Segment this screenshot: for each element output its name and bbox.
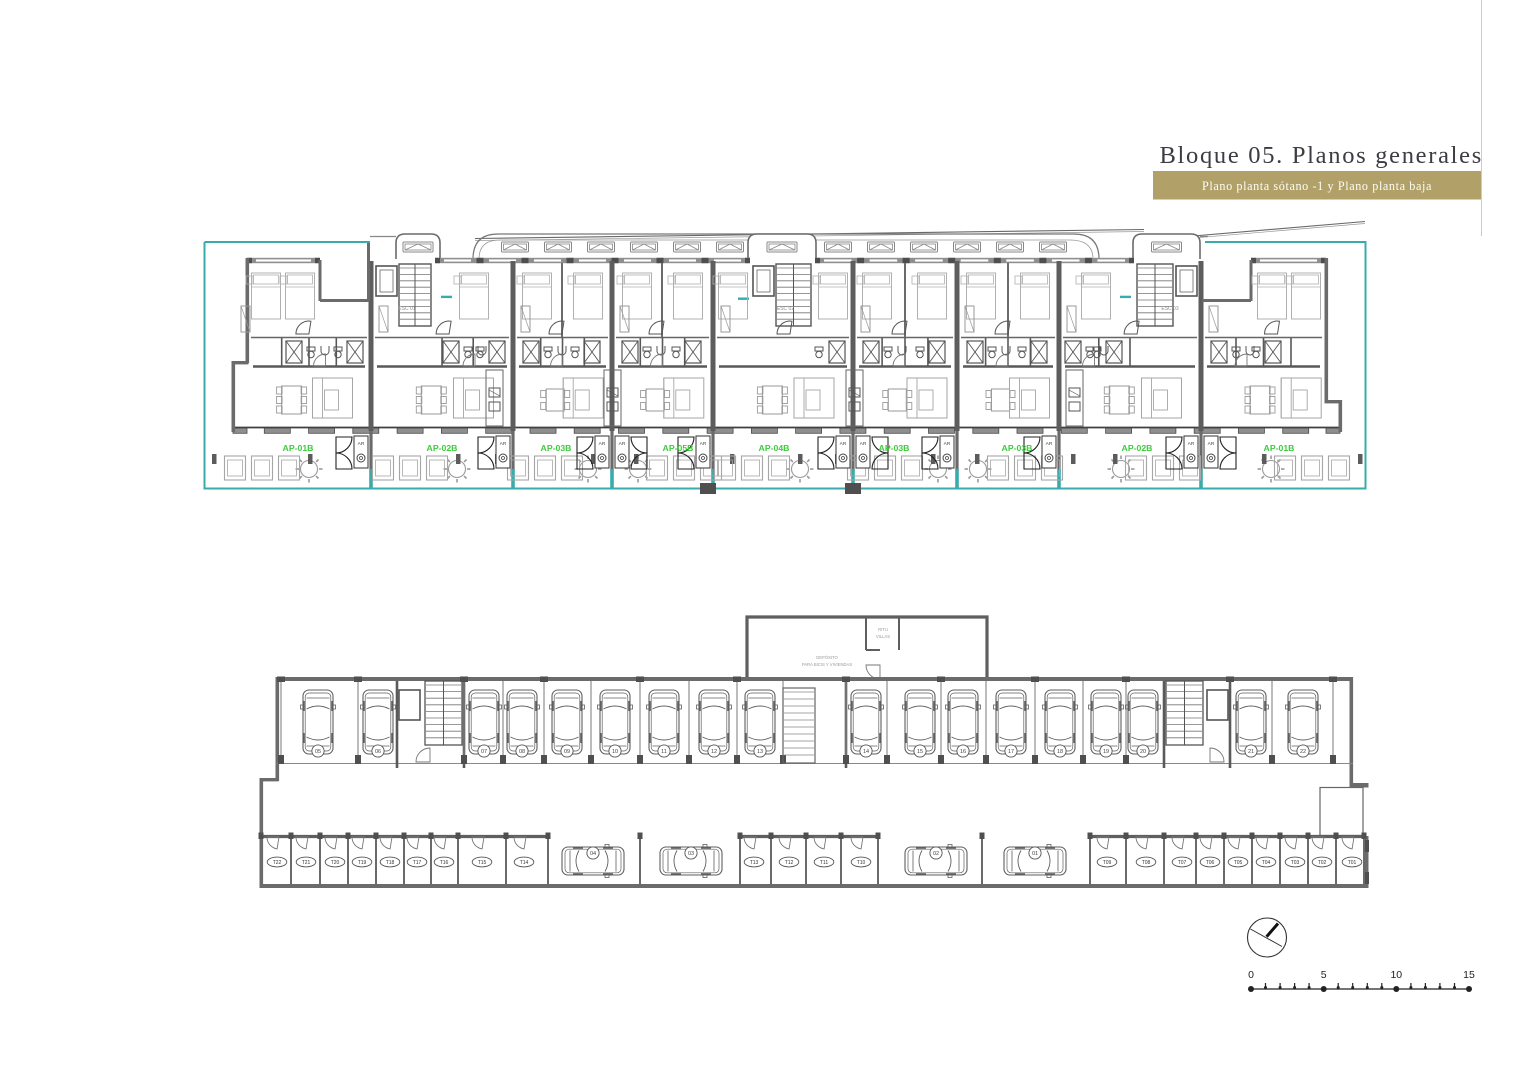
svg-text:AP-01B: AP-01B [283,443,314,453]
svg-text:AP-01B: AP-01B [1264,443,1295,453]
svg-text:AP-02B: AP-02B [427,443,458,453]
svg-text:17: 17 [1008,749,1014,755]
svg-text:T06: T06 [1206,860,1215,866]
svg-text:AR: AR [840,441,847,447]
svg-text:AR: AR [860,441,867,447]
svg-text:15: 15 [1463,969,1475,981]
svg-text:T01: T01 [1348,860,1357,866]
svg-text:06: 06 [375,749,381,755]
svg-text:AP-03B: AP-03B [879,443,910,453]
svg-text:20: 20 [1140,749,1146,755]
svg-text:ESC 03: ESC 03 [1161,306,1178,312]
svg-text:AP-03B: AP-03B [1002,443,1033,453]
svg-text:T22: T22 [273,860,282,866]
svg-text:AR: AR [700,441,707,447]
svg-text:5: 5 [1321,969,1327,981]
svg-text:08: 08 [519,749,525,755]
svg-text:T04: T04 [1262,860,1271,866]
svg-text:T12: T12 [785,860,794,866]
svg-text:T18: T18 [386,860,395,866]
svg-text:T16: T16 [440,860,449,866]
svg-text:ESC 01: ESC 01 [398,306,415,312]
svg-text:02: 02 [933,851,939,857]
svg-text:05: 05 [315,749,321,755]
svg-text:AR: AR [1046,441,1053,447]
svg-text:T20: T20 [331,860,340,866]
svg-text:T15: T15 [478,860,487,866]
svg-text:ESC 02: ESC 02 [777,306,794,312]
svg-text:VILLAS: VILLAS [876,634,890,639]
svg-text:07: 07 [481,749,487,755]
svg-text:03: 03 [688,851,694,857]
svg-text:01: 01 [1032,851,1038,857]
svg-text:T07: T07 [1178,860,1187,866]
svg-text:T11: T11 [820,860,828,866]
svg-text:11: 11 [661,749,667,755]
svg-text:T17: T17 [413,860,422,866]
svg-text:19: 19 [1103,749,1109,755]
svg-text:T09: T09 [1103,860,1112,866]
svg-text:T08: T08 [1142,860,1151,866]
svg-text:21: 21 [1248,749,1254,755]
svg-text:13: 13 [757,749,763,755]
svg-text:AP-04B: AP-04B [759,443,790,453]
svg-text:AR: AR [944,441,951,447]
svg-text:T13: T13 [750,860,759,866]
svg-text:09: 09 [564,749,570,755]
svg-text:T19: T19 [358,860,367,866]
svg-text:AR: AR [1208,441,1215,447]
svg-text:AR: AR [500,441,507,447]
svg-text:T03: T03 [1291,860,1300,866]
svg-text:14: 14 [863,749,869,755]
svg-text:T21: T21 [302,860,311,866]
svg-text:AR: AR [599,441,606,447]
svg-text:AR: AR [358,441,365,447]
svg-text:Plano planta sótano -1 y Plano: Plano planta sótano -1 y Plano planta ba… [1202,179,1432,193]
svg-text:PARA BICIS Y VIVIENDAS: PARA BICIS Y VIVIENDAS [802,662,852,667]
svg-text:DEPÓSITO: DEPÓSITO [816,655,838,660]
svg-text:T05: T05 [1234,860,1243,866]
svg-text:10: 10 [612,749,618,755]
svg-text:T10: T10 [857,860,866,866]
svg-text:10: 10 [1390,969,1402,981]
svg-text:22: 22 [1300,749,1306,755]
svg-text:16: 16 [960,749,966,755]
svg-text:AP-05B: AP-05B [663,443,694,453]
svg-text:AP-03B: AP-03B [541,443,572,453]
svg-text:AP-02B: AP-02B [1122,443,1153,453]
svg-text:AR: AR [1188,441,1195,447]
svg-text:Bloque 05. Planos generales: Bloque 05. Planos generales [1159,142,1483,169]
svg-text:18: 18 [1057,749,1063,755]
svg-text:AR: AR [619,441,626,447]
svg-text:04: 04 [590,851,596,857]
svg-text:T02: T02 [1318,860,1327,866]
svg-text:T14: T14 [520,860,529,866]
svg-text:12: 12 [711,749,717,755]
svg-text:0: 0 [1248,969,1254,981]
svg-text:RITU: RITU [878,627,888,632]
svg-text:15: 15 [917,749,923,755]
